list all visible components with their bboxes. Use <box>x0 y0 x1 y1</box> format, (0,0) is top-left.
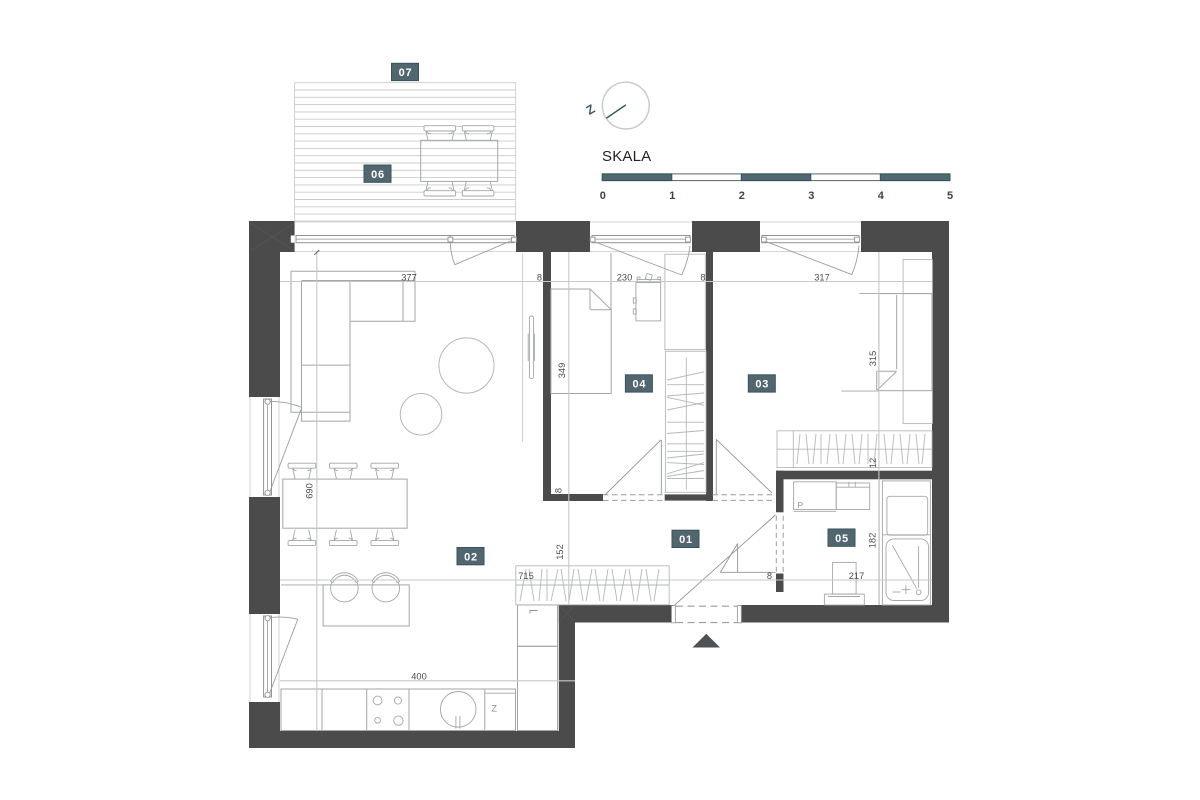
svg-text:P: P <box>798 500 804 510</box>
svg-text:230: 230 <box>617 272 633 282</box>
svg-text:690: 690 <box>305 483 315 499</box>
svg-text:8: 8 <box>767 571 772 581</box>
svg-text:377: 377 <box>401 272 417 282</box>
svg-text:1: 1 <box>669 190 675 202</box>
svg-text:8: 8 <box>554 488 564 493</box>
svg-text:217: 217 <box>849 571 865 581</box>
svg-text:07: 07 <box>399 67 413 79</box>
svg-text:317: 317 <box>814 272 830 282</box>
svg-text:02: 02 <box>464 551 478 563</box>
svg-text:152: 152 <box>555 544 565 560</box>
svg-text:715: 715 <box>518 571 534 581</box>
svg-text:5: 5 <box>947 190 953 202</box>
svg-text:8: 8 <box>537 272 542 282</box>
svg-text:349: 349 <box>557 363 567 379</box>
svg-text:4: 4 <box>878 190 885 202</box>
svg-text:06: 06 <box>371 169 385 181</box>
svg-text:SKALA: SKALA <box>602 148 651 165</box>
svg-text:05: 05 <box>835 533 849 545</box>
svg-text:03: 03 <box>755 379 769 391</box>
svg-text:0: 0 <box>600 190 606 202</box>
svg-text:12: 12 <box>868 458 878 468</box>
svg-text:01: 01 <box>679 534 693 546</box>
svg-text:8: 8 <box>700 272 705 282</box>
svg-text:04: 04 <box>632 379 646 391</box>
svg-text:Z: Z <box>491 704 497 715</box>
svg-text:400: 400 <box>411 671 427 681</box>
svg-text:182: 182 <box>868 533 878 549</box>
svg-text:315: 315 <box>868 351 878 367</box>
svg-text:3: 3 <box>808 190 814 202</box>
svg-text:2: 2 <box>739 190 745 202</box>
